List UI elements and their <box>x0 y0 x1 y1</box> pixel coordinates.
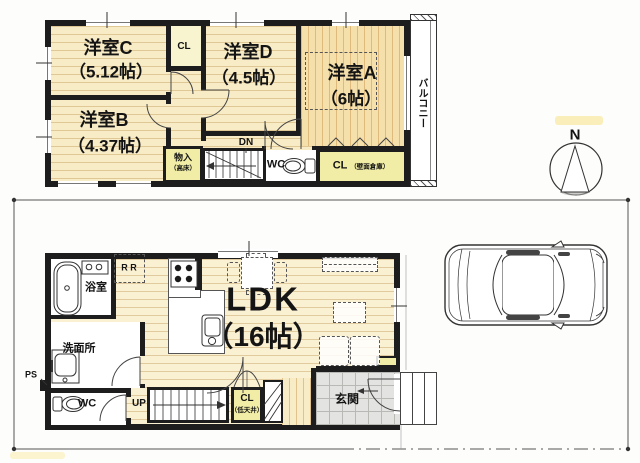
bathroom-label: 浴室 <box>85 283 107 294</box>
floor-plan: 洋室C （5.12帖） 洋室D （4.5帖） 洋室A （6帖） 洋室B （4.3… <box>0 0 640 463</box>
balcony-label: バルコニー <box>416 78 426 128</box>
f2-storage-note: （高床） <box>170 166 196 173</box>
f2-closet-c-label: CL <box>177 42 190 52</box>
f2-toilet-icon <box>283 159 315 174</box>
f2-closet-a-note: （壁面倉庫） <box>350 164 389 171</box>
washroom-label: 洗面所 <box>63 344 96 355</box>
f1-closet-note: （低天井） <box>231 408 264 415</box>
f2-closet-a-cl: CL <box>333 160 347 172</box>
compass <box>550 143 602 196</box>
ldk-name: LDK <box>226 283 300 316</box>
door-arcs <box>100 72 400 421</box>
f1-stairs-label: UP <box>132 399 146 409</box>
f2-room-a-name: 洋室A <box>328 64 377 82</box>
car-top-view <box>445 241 607 329</box>
f2-room-c-area: （5.12帖） <box>69 64 153 81</box>
f2-room-d-area: （4.5帖） <box>212 70 287 87</box>
f2-toilet-label: WC <box>267 160 285 171</box>
f1-toilet-label: WC <box>78 399 96 410</box>
f2-room-b-name: 洋室B <box>80 111 129 129</box>
f2-stairs-treads <box>206 148 261 178</box>
entrance-arrow <box>357 388 378 394</box>
f1-stairs-treads <box>153 390 226 420</box>
f2-storage-label: 物入 <box>174 154 192 163</box>
washbasin-icon <box>52 350 79 383</box>
f2-room-d-name: 洋室D <box>224 43 273 61</box>
compass-north-label: N <box>570 128 581 143</box>
f2-room-a-area: （6帖） <box>321 91 381 108</box>
f2-closet-a-label: CL （壁面倉庫） <box>333 161 390 172</box>
shoe-cabinet-lines <box>264 383 282 421</box>
f2-room-c-name: 洋室C <box>84 39 133 57</box>
ps-leader-line <box>41 379 47 385</box>
f2-room-b-area: （4.37帖） <box>68 138 152 155</box>
ldk-area: （16帖） <box>205 323 320 351</box>
f1-closet-label: CL <box>240 394 253 404</box>
stove-icon <box>171 261 197 287</box>
entrance-label: 玄関 <box>335 393 359 405</box>
pipe-space-label: PS <box>25 371 37 380</box>
refrigerator-label: R R <box>121 264 137 273</box>
f2-stairs-label: DN <box>239 138 253 148</box>
